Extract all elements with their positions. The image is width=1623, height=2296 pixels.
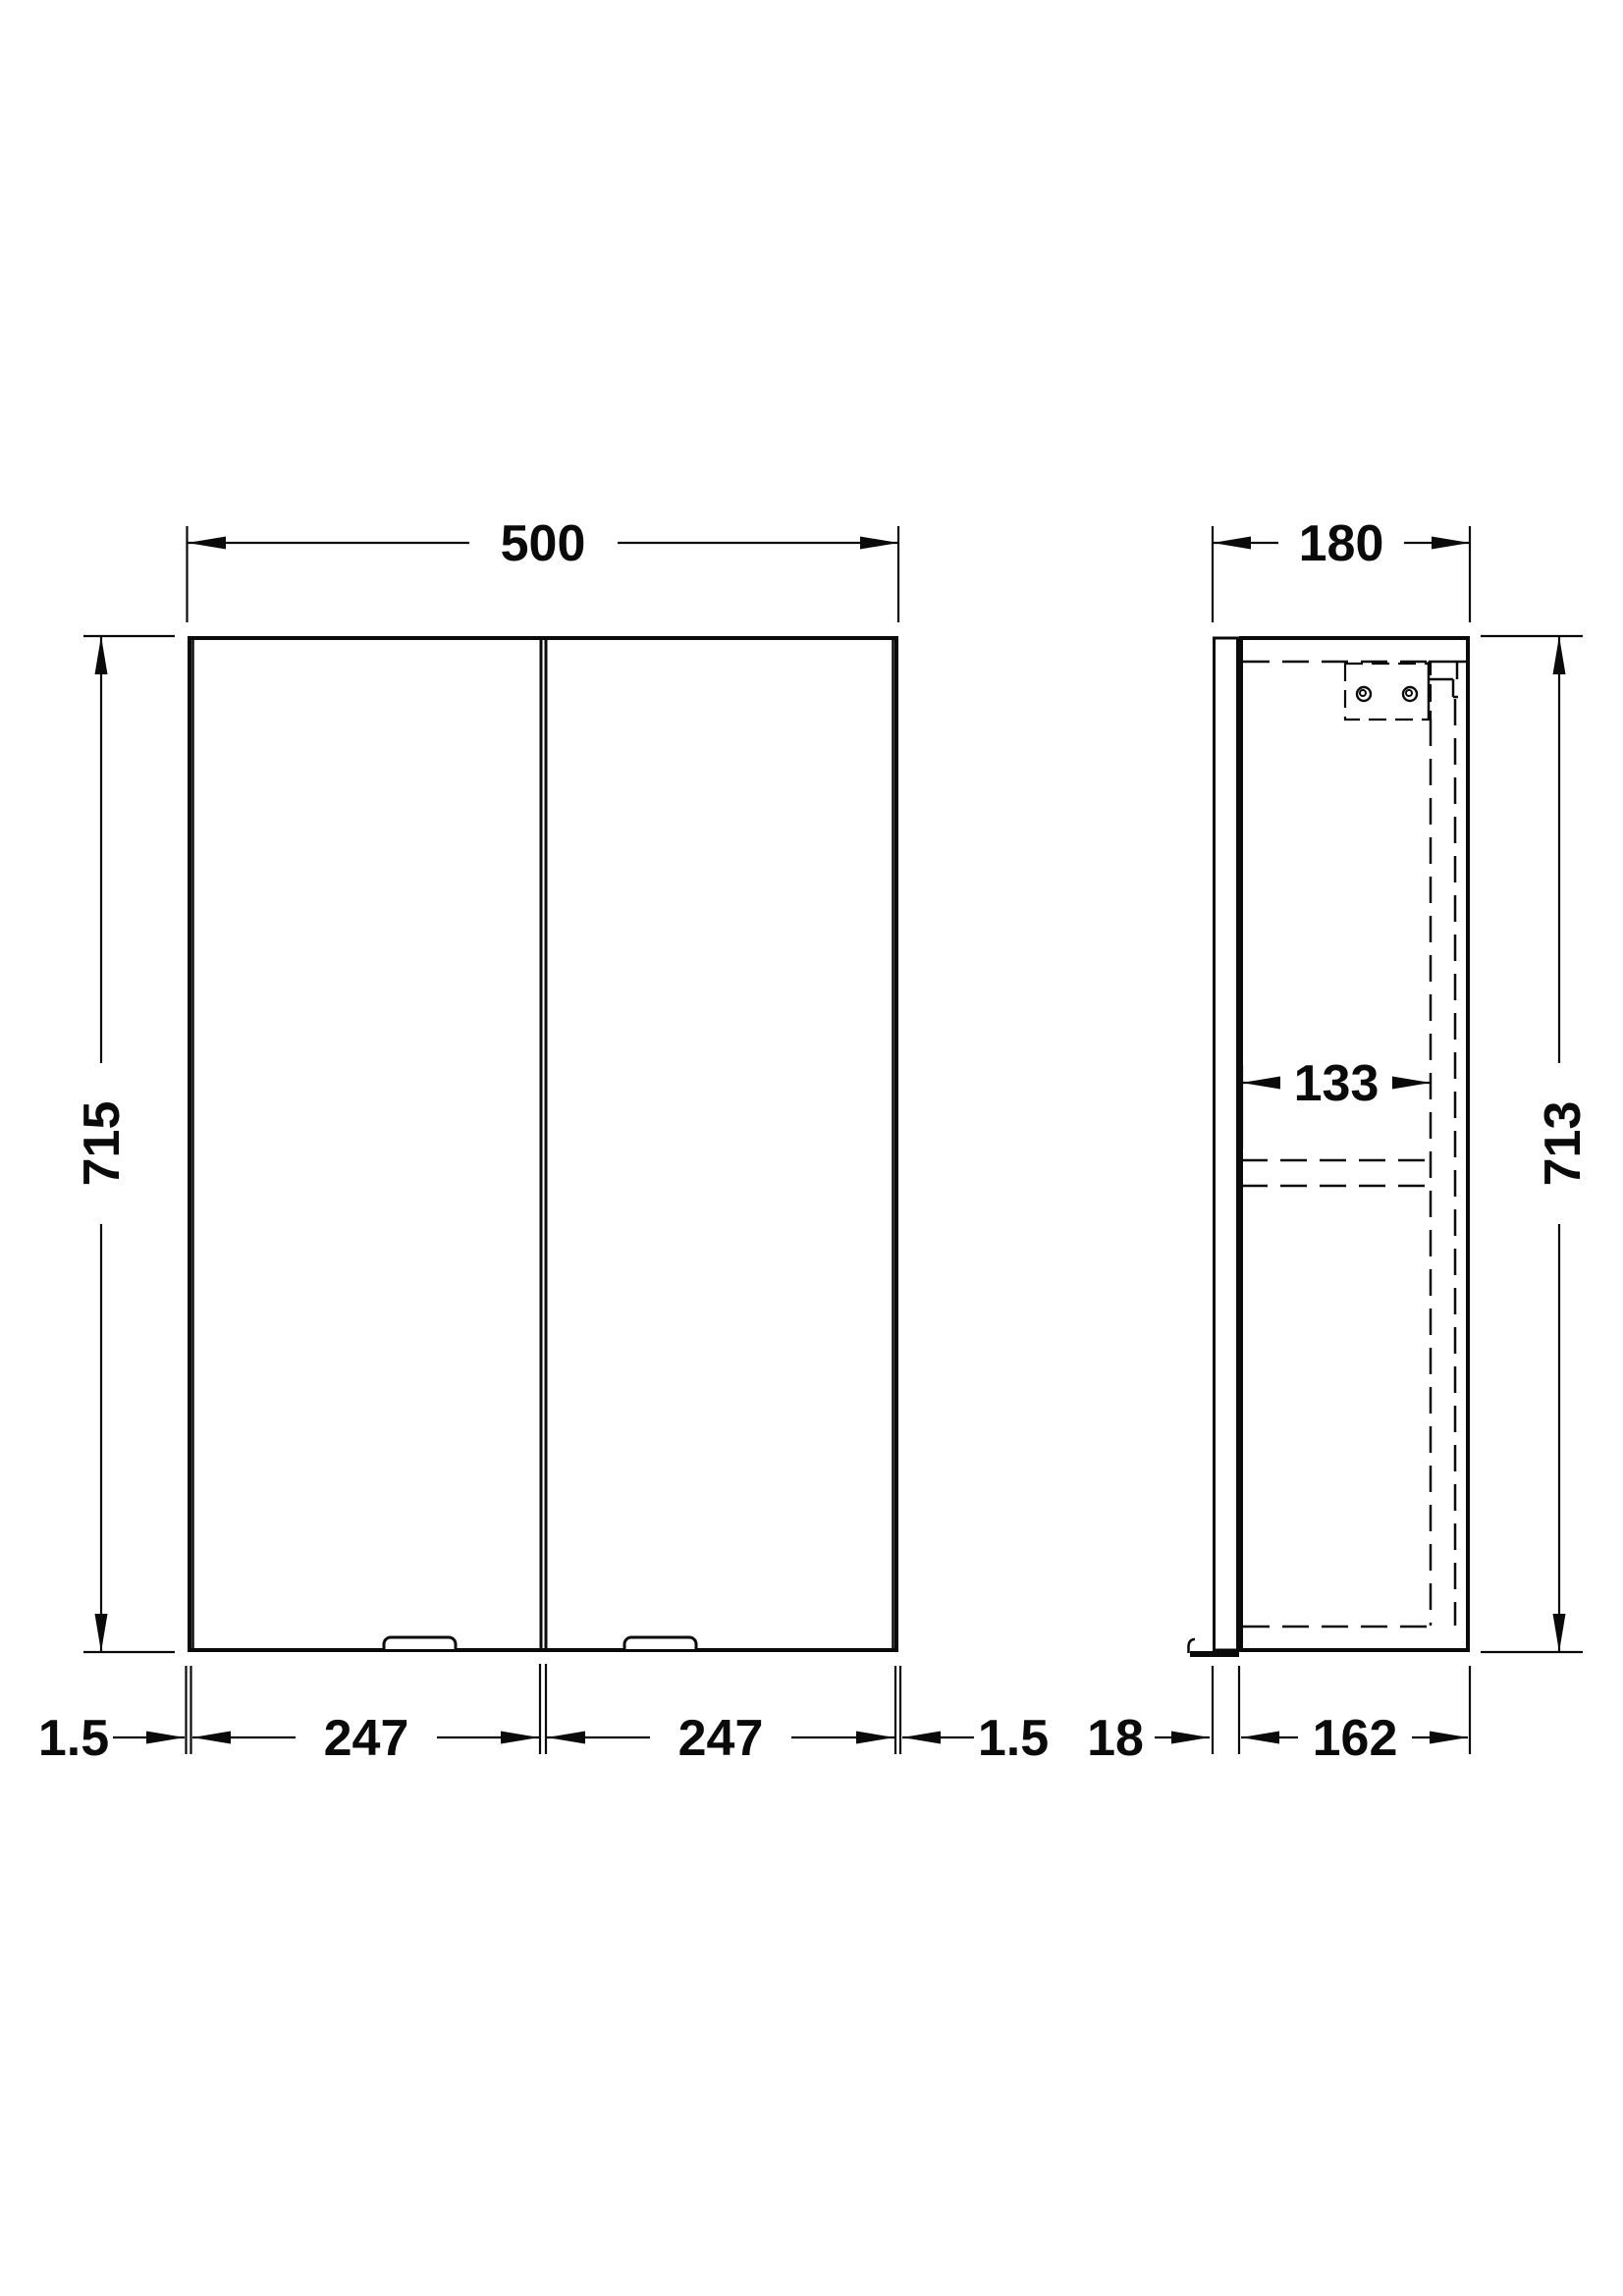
front-right-door-label: 247 (678, 1710, 764, 1767)
side-hidden-edges (1241, 662, 1467, 1627)
side-depth-label: 180 (1299, 515, 1384, 572)
side-door-panel (1215, 638, 1238, 1650)
front-width-label: 500 (501, 515, 586, 572)
front-right-door-handle (624, 1637, 696, 1649)
side-carcass-outline (1241, 638, 1468, 1650)
side-hanger-rail (1429, 662, 1458, 720)
front-height-label: 715 (74, 1101, 131, 1187)
technical-drawing-canvas: 500 715 1.5 247 247 1.5 180 133 713 18 1… (0, 0, 1623, 2296)
side-internal-depth-label: 133 (1294, 1055, 1380, 1112)
front-right-gap-label: 1.5 (978, 1710, 1049, 1767)
front-view-dimensions (83, 526, 974, 1754)
bracket-screw-left-icon (1357, 687, 1371, 701)
side-door-handle-bar (1190, 1651, 1239, 1657)
front-left-gap-label: 1.5 (38, 1710, 109, 1767)
front-left-door-handle (384, 1637, 456, 1649)
side-carcass-depth-label: 162 (1313, 1710, 1398, 1767)
dimension-labels: 500 715 1.5 247 247 1.5 180 133 713 18 1… (38, 515, 1592, 1767)
front-view (189, 638, 896, 1650)
cabinet-dimension-drawing: 500 715 1.5 247 247 1.5 180 133 713 18 1… (0, 0, 1623, 2296)
side-door-thickness-label: 18 (1087, 1710, 1144, 1767)
front-cabinet-outline (189, 638, 896, 1650)
bracket-screw-right-icon (1403, 687, 1417, 701)
side-view (1189, 638, 1469, 1657)
side-door-handle-lip (1189, 1639, 1196, 1653)
side-height-label: 713 (1535, 1101, 1592, 1187)
side-view-dimensions (1155, 526, 1583, 1754)
front-left-door-label: 247 (324, 1710, 409, 1767)
